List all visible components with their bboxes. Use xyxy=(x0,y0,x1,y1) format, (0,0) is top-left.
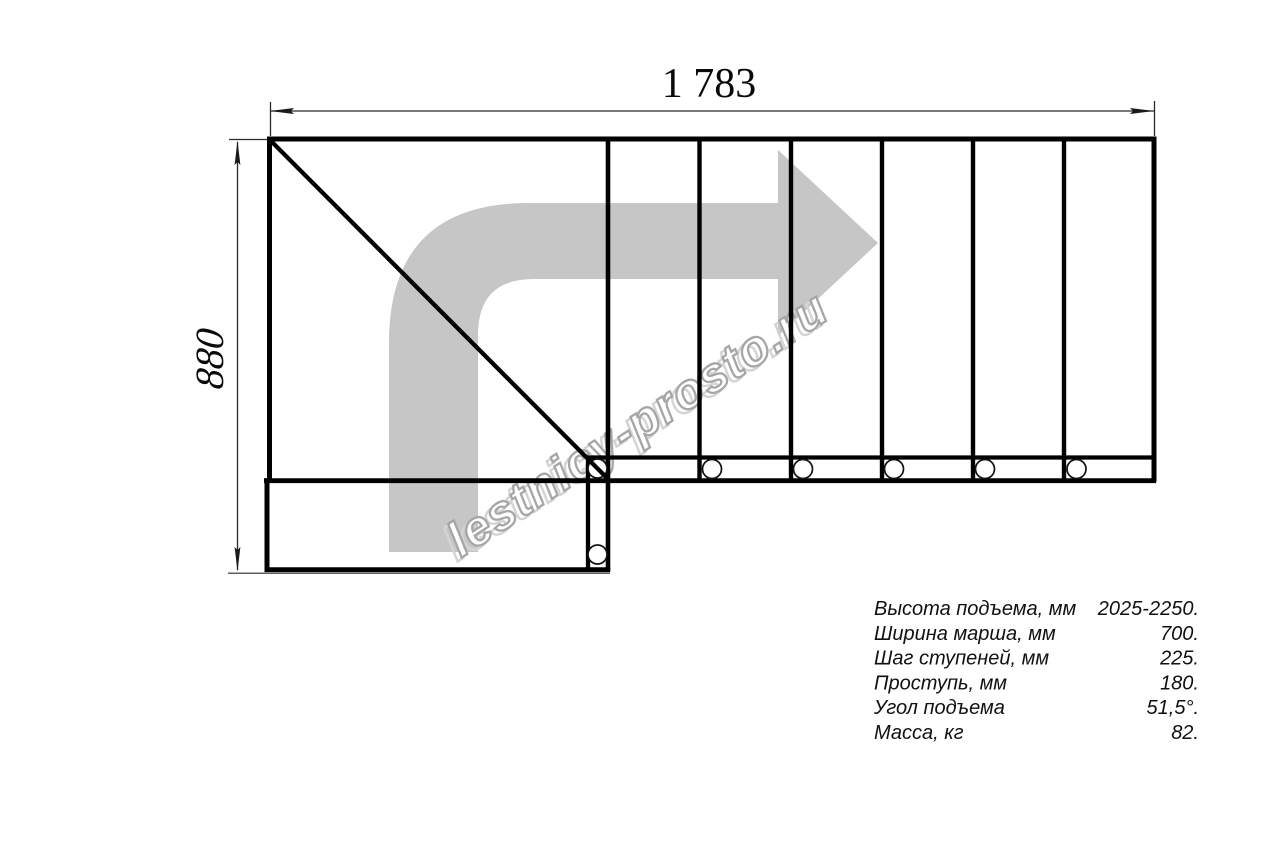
svg-text:880: 880 xyxy=(187,326,232,391)
svg-text:Масса, кг: Масса, кг xyxy=(874,722,964,744)
svg-text:700.: 700. xyxy=(1160,623,1199,645)
svg-text:Угол подъема: Угол подъема xyxy=(873,697,1005,719)
svg-text:Ширина марша, мм: Ширина марша, мм xyxy=(874,623,1056,645)
svg-text:Высота подъема, мм: Высота подъема, мм xyxy=(874,598,1076,620)
svg-text:51,5°.: 51,5°. xyxy=(1147,697,1199,719)
svg-text:180.: 180. xyxy=(1160,672,1199,694)
svg-text:82.: 82. xyxy=(1171,722,1199,744)
svg-text:225.: 225. xyxy=(1159,648,1199,670)
svg-text:2025-2250.: 2025-2250. xyxy=(1097,598,1199,620)
svg-text:Проступь, мм: Проступь, мм xyxy=(874,672,1007,694)
svg-text:Шаг ступеней, мм: Шаг ступеней, мм xyxy=(874,648,1049,670)
svg-text:1 783: 1 783 xyxy=(662,61,757,107)
